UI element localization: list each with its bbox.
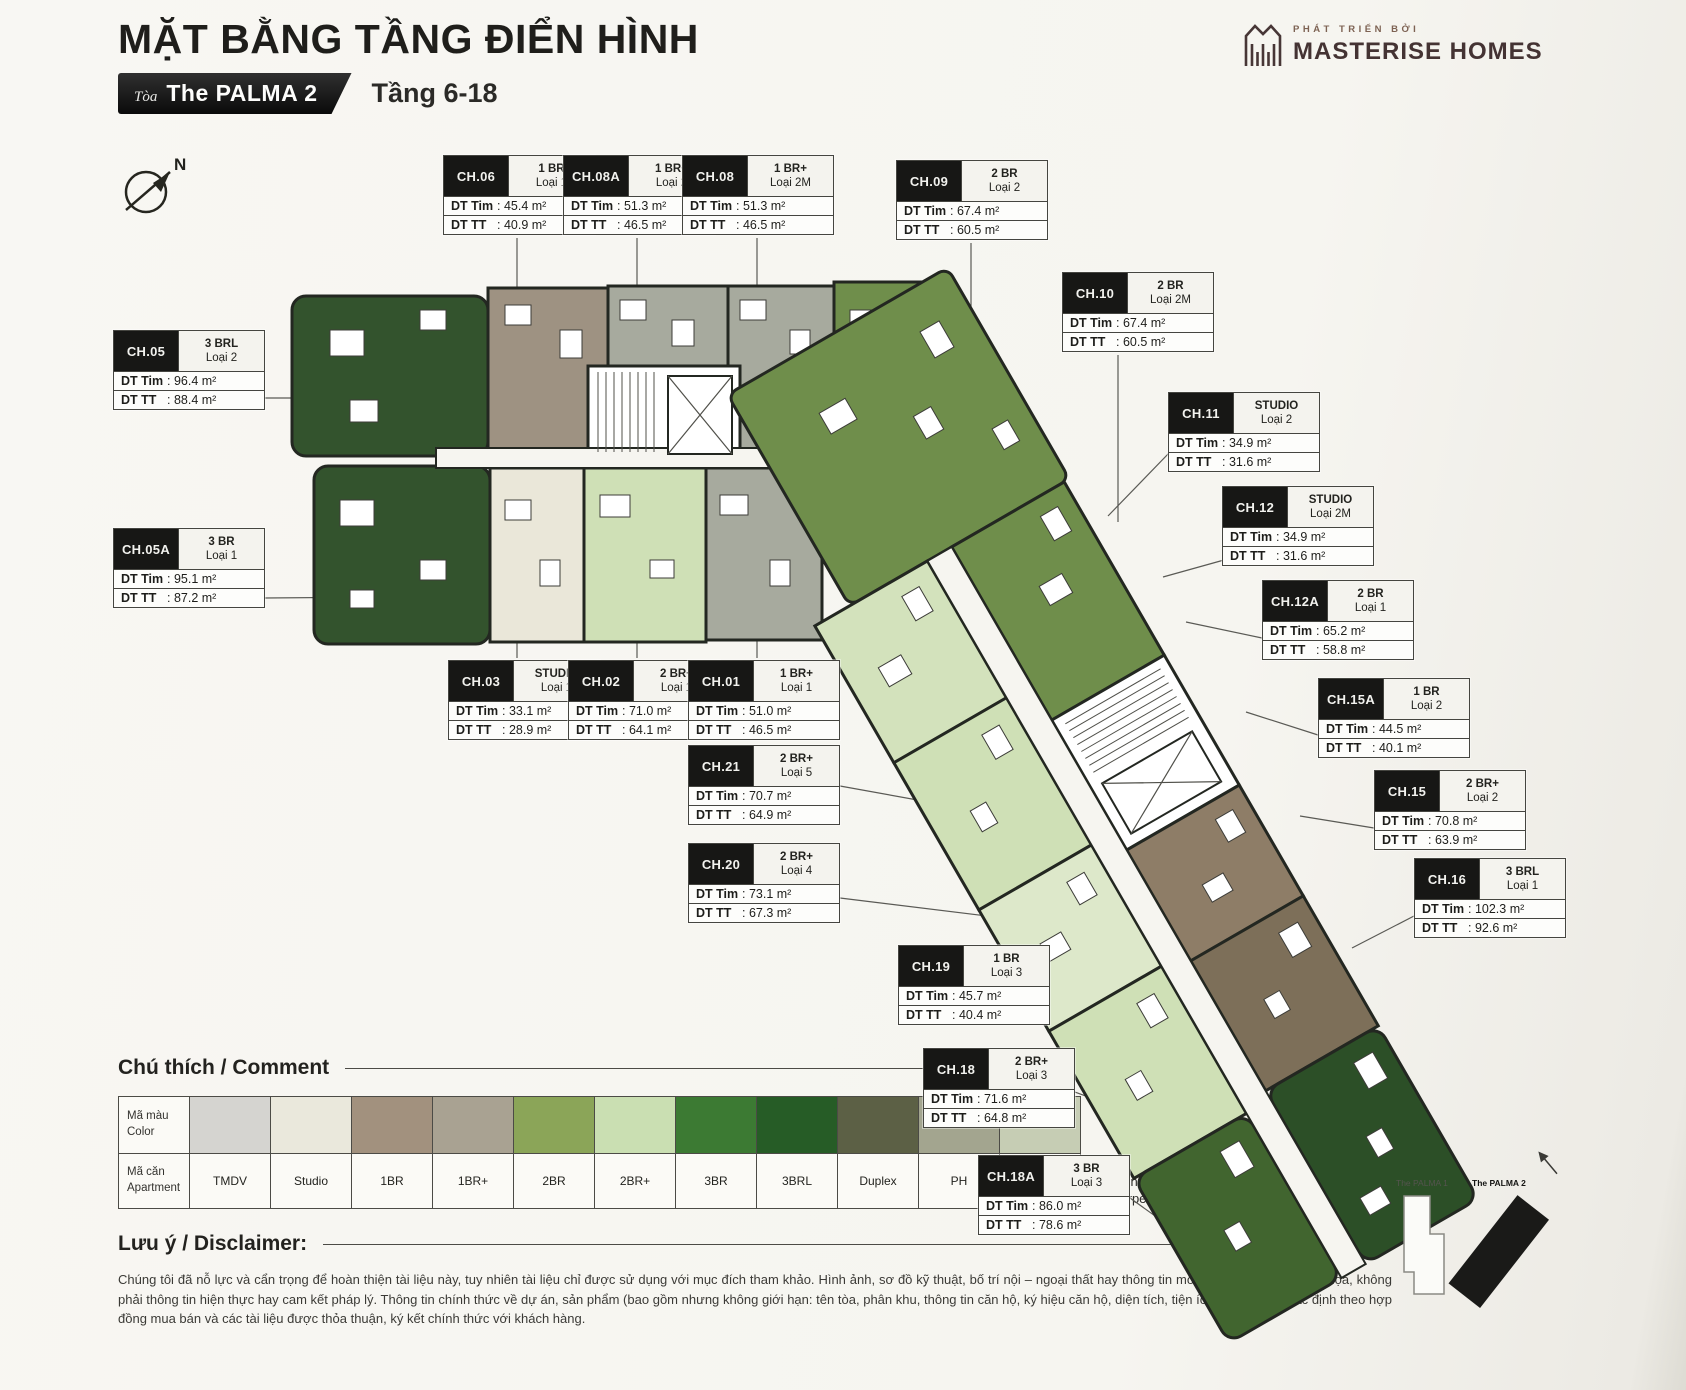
unit-code: CH.09 bbox=[897, 161, 961, 201]
dt-tim-label: DT Tim bbox=[121, 374, 167, 388]
unit-variant: Loại 2M bbox=[770, 176, 811, 190]
unit-builtup-row: DT Tim : 67.4 m² bbox=[1063, 313, 1213, 332]
unit-builtup-row: DT Tim : 96.4 m² bbox=[114, 371, 264, 390]
unit-carpet-row: DT TT : 31.6 m² bbox=[1223, 546, 1373, 565]
keyplan-building-1-label: The PALMA 1 bbox=[1396, 1178, 1448, 1188]
dt-tt-value: : 63.9 m² bbox=[1428, 833, 1518, 847]
dt-tt-value: : 60.5 m² bbox=[950, 223, 1040, 237]
dt-tt-value: : 40.4 m² bbox=[952, 1008, 1042, 1022]
unit-callout: CH.15 2 BR+ Loại 2 DT Tim : 70.8 m² DT T… bbox=[1374, 770, 1526, 850]
unit-type: 1 BR bbox=[1413, 685, 1439, 699]
unit-code: CH.12A bbox=[1263, 581, 1327, 621]
unit-variant: Loại 5 bbox=[781, 766, 812, 780]
dt-tim-value: : 67.4 m² bbox=[950, 204, 1040, 218]
dt-tt-label: DT TT bbox=[1176, 455, 1222, 469]
dt-tim-value: : 95.1 m² bbox=[167, 572, 257, 586]
dt-tim-label: DT Tim bbox=[1176, 436, 1222, 450]
unit-carpet-row: DT TT : 67.3 m² bbox=[689, 903, 839, 922]
unit-variant: Loại 2 bbox=[206, 351, 237, 365]
dt-tt-label: DT TT bbox=[1422, 921, 1468, 935]
dt-tt-value: : 78.6 m² bbox=[1032, 1218, 1122, 1232]
unit-variant: Loại 2M bbox=[1150, 293, 1191, 307]
keyplan-palma2-shape bbox=[1449, 1195, 1549, 1308]
dt-tt-label: DT TT bbox=[906, 1008, 952, 1022]
unit-type: 1 BR+ bbox=[774, 162, 807, 176]
unit-variant: Loại 2 bbox=[989, 181, 1020, 195]
unit-type: 2 BR bbox=[991, 167, 1017, 181]
unit-type: 2 BR bbox=[1157, 279, 1183, 293]
dt-tim-label: DT Tim bbox=[121, 572, 167, 586]
unit-callout: CH.08 1 BR+ Loại 2M DT Tim : 51.3 m² DT … bbox=[682, 155, 834, 235]
unit-builtup-row: DT Tim : 95.1 m² bbox=[114, 569, 264, 588]
unit-type: 3 BR bbox=[208, 535, 234, 549]
dt-tt-label: DT TT bbox=[696, 723, 742, 737]
dt-tim-label: DT Tim bbox=[696, 704, 742, 718]
unit-builtup-row: DT Tim : 86.0 m² bbox=[979, 1196, 1129, 1215]
dt-tim-value: : 96.4 m² bbox=[167, 374, 257, 388]
unit-type: 1 BR+ bbox=[780, 667, 813, 681]
unit-carpet-row: DT TT : 92.6 m² bbox=[1415, 918, 1565, 937]
dt-tt-value: : 31.6 m² bbox=[1222, 455, 1312, 469]
unit-builtup-row: DT Tim : 51.0 m² bbox=[689, 701, 839, 720]
dt-tt-value: : 67.3 m² bbox=[742, 906, 832, 920]
unit-code: CH.05A bbox=[114, 529, 178, 569]
dt-tim-label: DT Tim bbox=[1230, 530, 1276, 544]
unit-callout: CH.18A 3 BR Loại 3 DT Tim : 86.0 m² DT T… bbox=[978, 1155, 1130, 1235]
unit-type: 2 BR+ bbox=[1466, 777, 1499, 791]
unit-type: 3 BRL bbox=[1506, 865, 1539, 879]
dt-tt-value: : 64.9 m² bbox=[742, 808, 832, 822]
unit-code: CH.15A bbox=[1319, 679, 1383, 719]
dt-tim-value: : 34.9 m² bbox=[1276, 530, 1366, 544]
dt-tt-value: : 40.1 m² bbox=[1372, 741, 1462, 755]
unit-carpet-row: DT TT : 64.9 m² bbox=[689, 805, 839, 824]
dt-tim-value: : 73.1 m² bbox=[742, 887, 832, 901]
unit-type: 2 BR+ bbox=[780, 752, 813, 766]
unit-carpet-row: DT TT : 88.4 m² bbox=[114, 390, 264, 409]
unit-code: CH.10 bbox=[1063, 273, 1127, 313]
dt-tim-label: DT Tim bbox=[1070, 316, 1116, 330]
unit-builtup-row: DT Tim : 70.7 m² bbox=[689, 786, 839, 805]
unit-code: CH.21 bbox=[689, 746, 753, 786]
unit-variant: Loại 1 bbox=[1507, 879, 1538, 893]
dt-tt-label: DT TT bbox=[456, 723, 502, 737]
unit-type: 1 BR bbox=[993, 952, 1019, 966]
unit-callout: CH.05 3 BRL Loại 2 DT Tim : 96.4 m² DT T… bbox=[113, 330, 265, 410]
unit-callout: CH.21 2 BR+ Loại 5 DT Tim : 70.7 m² DT T… bbox=[688, 745, 840, 825]
dt-tim-label: DT Tim bbox=[986, 1199, 1032, 1213]
unit-carpet-row: DT TT : 31.6 m² bbox=[1169, 452, 1319, 471]
unit-carpet-row: DT TT : 58.8 m² bbox=[1263, 640, 1413, 659]
unit-carpet-row: DT TT : 60.5 m² bbox=[1063, 332, 1213, 351]
dt-tt-value: : 92.6 m² bbox=[1468, 921, 1558, 935]
unit-code: CH.06 bbox=[444, 156, 508, 196]
unit-builtup-row: DT Tim : 51.3 m² bbox=[683, 196, 833, 215]
dt-tim-value: : 44.5 m² bbox=[1372, 722, 1462, 736]
dt-tt-label: DT TT bbox=[1270, 643, 1316, 657]
unit-callout: CH.11 STUDIO Loại 2 DT Tim : 34.9 m² DT … bbox=[1168, 392, 1320, 472]
dt-tt-label: DT TT bbox=[1326, 741, 1372, 755]
unit-type: 2 BR bbox=[1357, 587, 1383, 601]
dt-tim-value: : 86.0 m² bbox=[1032, 1199, 1122, 1213]
unit-type: STUDIO bbox=[1255, 399, 1298, 413]
north-label: N bbox=[174, 155, 186, 174]
unit-type: 2 BR+ bbox=[1015, 1055, 1048, 1069]
unit-builtup-row: DT Tim : 71.6 m² bbox=[924, 1089, 1074, 1108]
unit-type: 2 BR+ bbox=[780, 850, 813, 864]
unit-callout: CH.10 2 BR Loại 2M DT Tim : 67.4 m² DT T… bbox=[1062, 272, 1214, 352]
unit-builtup-row: DT Tim : 73.1 m² bbox=[689, 884, 839, 903]
unit-variant: Loại 2 bbox=[1467, 791, 1498, 805]
unit-carpet-row: DT TT : 40.4 m² bbox=[899, 1005, 1049, 1024]
dt-tim-label: DT Tim bbox=[690, 199, 736, 213]
unit-builtup-row: DT Tim : 45.7 m² bbox=[899, 986, 1049, 1005]
keyplan-north-arrow bbox=[1535, 1148, 1561, 1177]
unit-code: CH.05 bbox=[114, 331, 178, 371]
dt-tim-value: : 70.8 m² bbox=[1428, 814, 1518, 828]
dt-tt-label: DT TT bbox=[121, 393, 167, 407]
unit-builtup-row: DT Tim : 102.3 m² bbox=[1415, 899, 1565, 918]
unit-carpet-row: DT TT : 40.1 m² bbox=[1319, 738, 1469, 757]
unit-callout: CH.09 2 BR Loại 2 DT Tim : 67.4 m² DT TT… bbox=[896, 160, 1048, 240]
unit-variant: Loại 1 bbox=[781, 681, 812, 695]
dt-tt-value: : 31.6 m² bbox=[1276, 549, 1366, 563]
dt-tim-value: : 51.3 m² bbox=[736, 199, 826, 213]
unit-code: CH.03 bbox=[449, 661, 513, 701]
unit-code: CH.12 bbox=[1223, 487, 1287, 527]
unit-variant: Loại 4 bbox=[781, 864, 812, 878]
dt-tim-value: : 71.6 m² bbox=[977, 1092, 1067, 1106]
unit-callout: CH.12 STUDIO Loại 2M DT Tim : 34.9 m² DT… bbox=[1222, 486, 1374, 566]
dt-tt-label: DT TT bbox=[690, 218, 736, 232]
unit-carpet-row: DT TT : 60.5 m² bbox=[897, 220, 1047, 239]
unit-callout: CH.01 1 BR+ Loại 1 DT Tim : 51.0 m² DT T… bbox=[688, 660, 840, 740]
unit-variant: Loại 2M bbox=[1310, 507, 1351, 521]
dt-tt-label: DT TT bbox=[696, 808, 742, 822]
unit-code: CH.01 bbox=[689, 661, 753, 701]
unit-code: CH.08 bbox=[683, 156, 747, 196]
dt-tt-label: DT TT bbox=[576, 723, 622, 737]
unit-carpet-row: DT TT : 63.9 m² bbox=[1375, 830, 1525, 849]
unit-builtup-row: DT Tim : 34.9 m² bbox=[1169, 433, 1319, 452]
dt-tim-label: DT Tim bbox=[906, 989, 952, 1003]
dt-tim-label: DT Tim bbox=[451, 199, 497, 213]
unit-variant: Loại 3 bbox=[991, 966, 1022, 980]
unit-builtup-row: DT Tim : 65.2 m² bbox=[1263, 621, 1413, 640]
unit-code: CH.18A bbox=[979, 1156, 1043, 1196]
dt-tt-label: DT TT bbox=[451, 218, 497, 232]
dt-tim-label: DT Tim bbox=[576, 704, 622, 718]
unit-code: CH.20 bbox=[689, 844, 753, 884]
unit-type: 3 BR bbox=[1073, 1162, 1099, 1176]
unit-carpet-row: DT TT : 46.5 m² bbox=[683, 215, 833, 234]
dt-tim-label: DT Tim bbox=[696, 887, 742, 901]
dt-tim-value: : 67.4 m² bbox=[1116, 316, 1206, 330]
unit-code: CH.19 bbox=[899, 946, 963, 986]
unit-carpet-row: DT TT : 78.6 m² bbox=[979, 1215, 1129, 1234]
dt-tim-label: DT Tim bbox=[1326, 722, 1372, 736]
unit-code: CH.08A bbox=[564, 156, 628, 196]
unit-variant: Loại 1 bbox=[206, 549, 237, 563]
unit-builtup-row: DT Tim : 44.5 m² bbox=[1319, 719, 1469, 738]
unit-type: 3 BRL bbox=[205, 337, 238, 351]
unit-callout: CH.05A 3 BR Loại 1 DT Tim : 95.1 m² DT T… bbox=[113, 528, 265, 608]
dt-tim-label: DT Tim bbox=[1270, 624, 1316, 638]
dt-tim-value: : 70.7 m² bbox=[742, 789, 832, 803]
dt-tt-value: : 64.8 m² bbox=[977, 1111, 1067, 1125]
north-compass: N bbox=[126, 155, 186, 212]
dt-tt-value: : 87.2 m² bbox=[167, 591, 257, 605]
dt-tt-value: : 58.8 m² bbox=[1316, 643, 1406, 657]
dt-tt-label: DT TT bbox=[1382, 833, 1428, 847]
unit-builtup-row: DT Tim : 70.8 m² bbox=[1375, 811, 1525, 830]
unit-callout: CH.18 2 BR+ Loại 3 DT Tim : 71.6 m² DT T… bbox=[923, 1048, 1075, 1128]
keyplan-building-2-label: The PALMA 2 bbox=[1472, 1178, 1526, 1188]
unit-variant: Loại 2 bbox=[1411, 699, 1442, 713]
dt-tt-label: DT TT bbox=[986, 1218, 1032, 1232]
unit-carpet-row: DT TT : 64.8 m² bbox=[924, 1108, 1074, 1127]
unit-code: CH.18 bbox=[924, 1049, 988, 1089]
unit-builtup-row: DT Tim : 67.4 m² bbox=[897, 201, 1047, 220]
dt-tt-label: DT TT bbox=[931, 1111, 977, 1125]
unit-carpet-row: DT TT : 46.5 m² bbox=[689, 720, 839, 739]
unit-code: CH.11 bbox=[1169, 393, 1233, 433]
dt-tim-label: DT Tim bbox=[931, 1092, 977, 1106]
dt-tt-label: DT TT bbox=[121, 591, 167, 605]
dt-tt-label: DT TT bbox=[571, 218, 617, 232]
dt-tim-value: : 51.0 m² bbox=[742, 704, 832, 718]
dt-tim-label: DT Tim bbox=[571, 199, 617, 213]
unit-callout: CH.15A 1 BR Loại 2 DT Tim : 44.5 m² DT T… bbox=[1318, 678, 1470, 758]
dt-tim-value: : 34.9 m² bbox=[1222, 436, 1312, 450]
dt-tt-label: DT TT bbox=[904, 223, 950, 237]
dt-tim-value: : 65.2 m² bbox=[1316, 624, 1406, 638]
dt-tim-value: : 45.7 m² bbox=[952, 989, 1042, 1003]
dt-tt-value: : 60.5 m² bbox=[1116, 335, 1206, 349]
dt-tim-value: : 102.3 m² bbox=[1468, 902, 1558, 916]
unit-callout: CH.16 3 BRL Loại 1 DT Tim : 102.3 m² DT … bbox=[1414, 858, 1566, 938]
unit-builtup-row: DT Tim : 34.9 m² bbox=[1223, 527, 1373, 546]
unit-code: CH.15 bbox=[1375, 771, 1439, 811]
dt-tim-label: DT Tim bbox=[696, 789, 742, 803]
dt-tim-label: DT Tim bbox=[456, 704, 502, 718]
unit-variant: Loại 3 bbox=[1016, 1069, 1047, 1083]
unit-type: 1 BR bbox=[538, 162, 564, 176]
dt-tim-label: DT Tim bbox=[1422, 902, 1468, 916]
unit-carpet-row: DT TT : 87.2 m² bbox=[114, 588, 264, 607]
dt-tt-value: : 46.5 m² bbox=[736, 218, 826, 232]
unit-callout: CH.12A 2 BR Loại 1 DT Tim : 65.2 m² DT T… bbox=[1262, 580, 1414, 660]
unit-variant: Loại 2 bbox=[1261, 413, 1292, 427]
dt-tt-label: DT TT bbox=[696, 906, 742, 920]
unit-type: STUDIO bbox=[1309, 493, 1352, 507]
dt-tt-label: DT TT bbox=[1070, 335, 1116, 349]
dt-tt-label: DT TT bbox=[1230, 549, 1276, 563]
unit-variant: Loại 3 bbox=[1071, 1176, 1102, 1190]
unit-callout: CH.19 1 BR Loại 3 DT Tim : 45.7 m² DT TT… bbox=[898, 945, 1050, 1025]
dt-tim-label: DT Tim bbox=[904, 204, 950, 218]
unit-code: CH.02 bbox=[569, 661, 633, 701]
dt-tt-value: : 88.4 m² bbox=[167, 393, 257, 407]
unit-variant: Loại 1 bbox=[1355, 601, 1386, 615]
unit-code: CH.16 bbox=[1415, 859, 1479, 899]
dt-tim-label: DT Tim bbox=[1382, 814, 1428, 828]
dt-tt-value: : 46.5 m² bbox=[742, 723, 832, 737]
unit-callout: CH.20 2 BR+ Loại 4 DT Tim : 73.1 m² DT T… bbox=[688, 843, 840, 923]
